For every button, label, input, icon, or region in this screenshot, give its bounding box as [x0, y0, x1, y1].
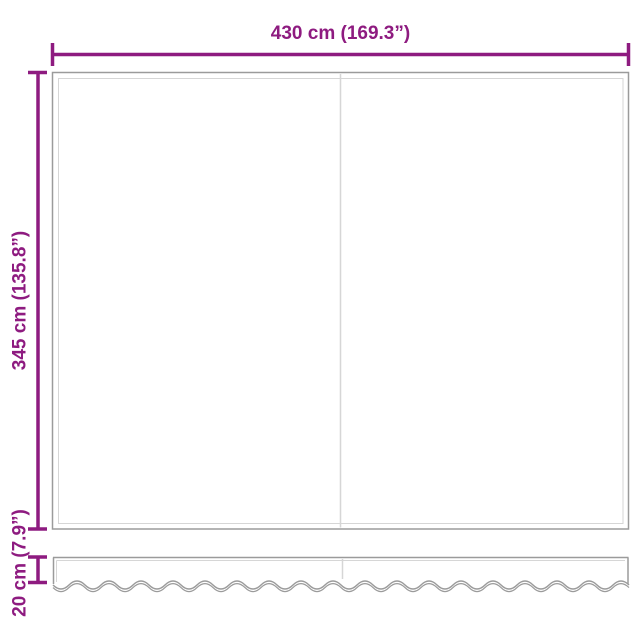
width-dimension-label: 430 cm (169.3”): [271, 23, 410, 44]
fabric-panel-hems: [59, 74, 624, 528]
dimension-diagram-svg: 430 cm (169.3”) 345 cm (135.8”) 20 cm (7…: [0, 0, 640, 640]
valance-dimension-label: 20 cm (7.9”): [10, 509, 31, 617]
product-dimension-diagram: 430 cm (169.3”) 345 cm (135.8”) 20 cm (7…: [0, 0, 640, 640]
valance-hems: [57, 559, 626, 582]
dimension-lines: [28, 43, 629, 583]
valance: [53, 558, 629, 592]
height-dimension-label: 345 cm (135.8”): [10, 231, 31, 370]
dimension-labels: 430 cm (169.3”) 345 cm (135.8”) 20 cm (7…: [10, 23, 411, 617]
